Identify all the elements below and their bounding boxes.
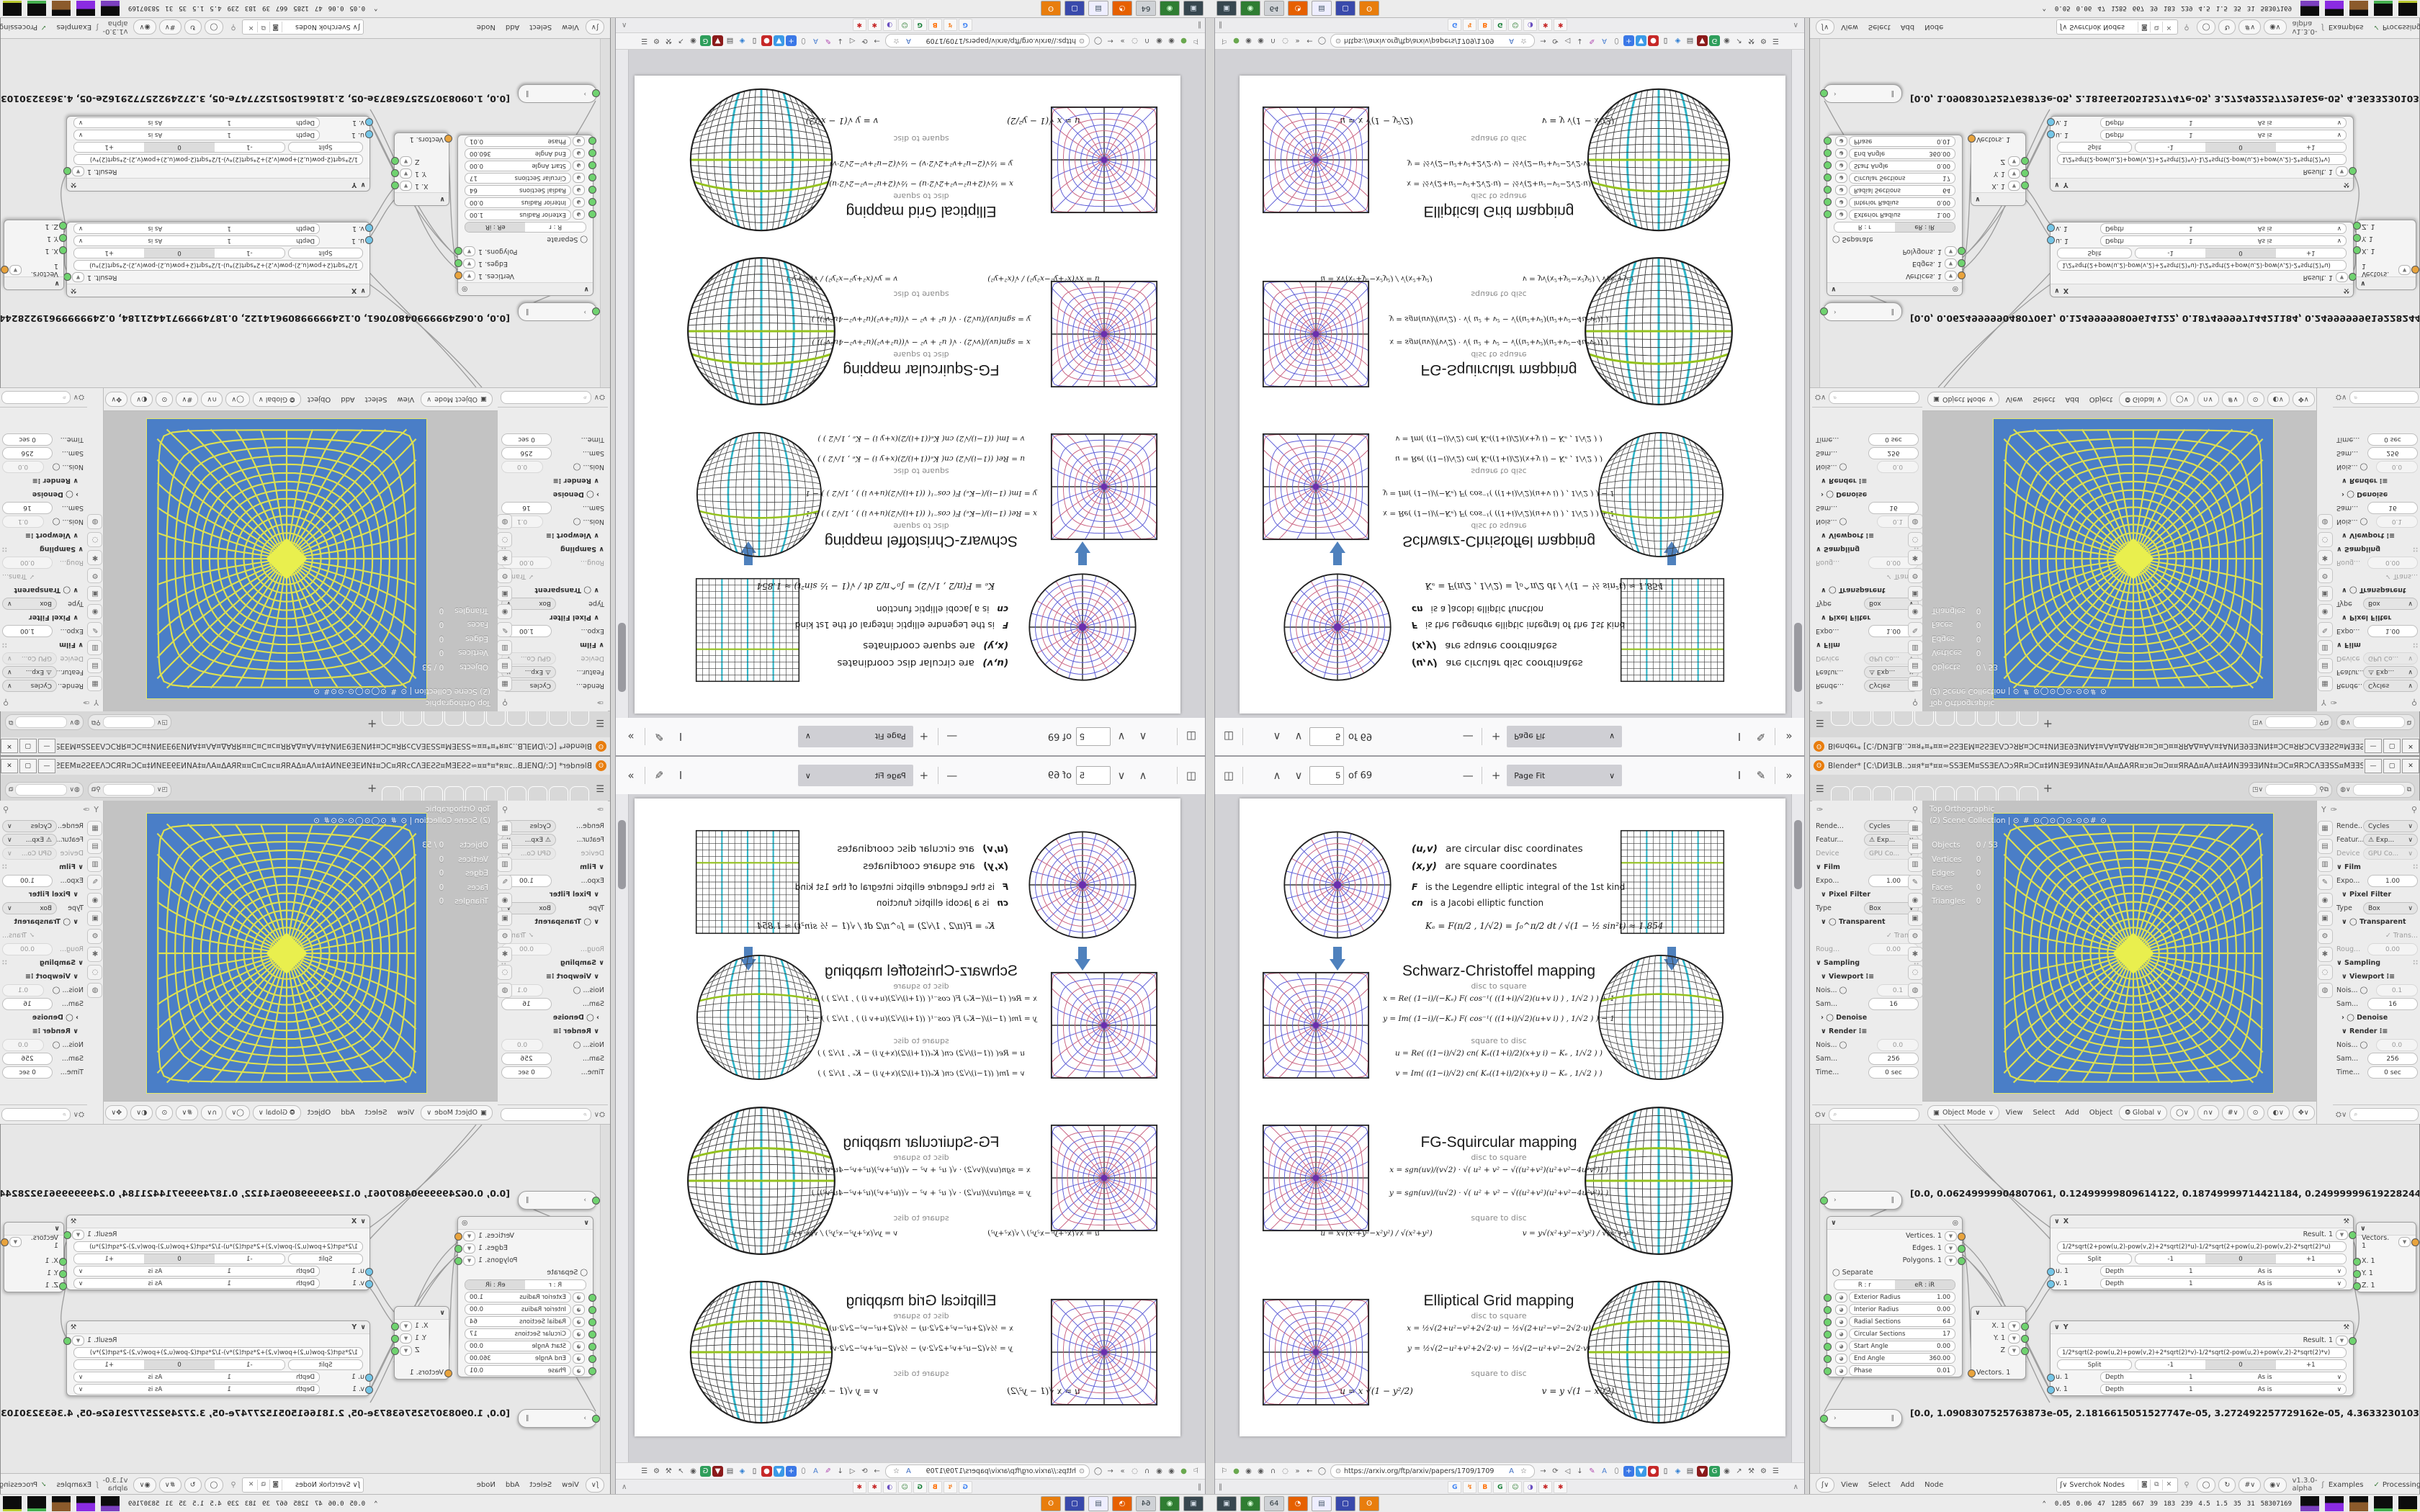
- google-ext-icon[interactable]: G: [1709, 35, 1720, 46]
- pencil-ext-icon[interactable]: ✎: [823, 35, 833, 46]
- sidebar-toggle-icon[interactable]: ◫: [1219, 727, 1238, 746]
- pin-icon[interactable]: ⚲: [2319, 786, 2324, 793]
- pin-icon[interactable]: ⚲: [502, 805, 508, 814]
- draw-tool[interactable]: ✎: [650, 766, 668, 785]
- slider-circular-sections[interactable]: Circular Sections17: [1849, 173, 1955, 184]
- slider-end-angle[interactable]: End Angle360.00: [465, 148, 571, 159]
- socket-vertices-out[interactable]: [1958, 1233, 1966, 1241]
- tab-output[interactable]: ▤: [2318, 658, 2333, 673]
- pinned-tab-gear2[interactable]: ✱: [853, 1481, 866, 1493]
- tab-physics[interactable]: ◌: [2318, 532, 2333, 547]
- sampling-panel-header[interactable]: ∨ Sampling: [1816, 545, 1914, 553]
- bookmark-star-icon[interactable]: ☆: [891, 1466, 902, 1477]
- menu-object[interactable]: Object: [308, 395, 331, 403]
- menu-node[interactable]: Node: [1924, 1481, 1943, 1489]
- render-engine-select[interactable]: Cycles∨: [2, 820, 57, 832]
- workspace-tab[interactable]: [1894, 786, 1913, 801]
- viewport-3d[interactable]: Top Orthographic (2) Scene Collection | …: [1922, 388, 2316, 711]
- viewport-sampling-header[interactable]: ∨ Viewport ⁝≡: [501, 531, 599, 539]
- pdf-scroll-thumb[interactable]: [1794, 820, 1802, 889]
- sidebar-toggle-icon[interactable]: ◫: [1182, 766, 1201, 785]
- app-menu-icon[interactable]: ☰: [596, 784, 604, 795]
- globe-icon[interactable]: ◉: [1154, 1466, 1165, 1477]
- plus-ext-icon[interactable]: +: [786, 1466, 797, 1477]
- menu-add[interactable]: Add: [1901, 24, 1914, 32]
- slider-phase[interactable]: Phase0.01: [1849, 136, 1955, 147]
- viewlayer-selector[interactable]: ◍∨ ⧉: [5, 714, 84, 730]
- filter-type-select[interactable]: Box∨: [2, 902, 57, 914]
- denoise-header[interactable]: › ◯ Denoise: [501, 1014, 599, 1022]
- feature-set-select[interactable]: ⚠ Exp...∨: [2363, 666, 2418, 678]
- scene-name-field[interactable]: [2265, 716, 2317, 728]
- reader-icon[interactable]: ◯: [1093, 35, 1103, 46]
- gear-icon[interactable]: ⚙: [1758, 1466, 1769, 1477]
- zoom-select[interactable]: Page Fit ∨: [798, 765, 913, 786]
- feature-set-select[interactable]: ⚠ Exp...∨: [2, 834, 57, 846]
- zoom-in-button[interactable]: +: [915, 766, 933, 785]
- tab-physics[interactable]: ◌: [1908, 965, 1923, 980]
- pinned-tab-stackoverflow[interactable]: ↯: [944, 1481, 957, 1493]
- socket-z-out[interactable]: [391, 157, 399, 165]
- tab-scene[interactable]: ✎: [1908, 875, 1923, 890]
- zoom-in-button[interactable]: +: [1487, 766, 1505, 785]
- viewlayer-name-field[interactable]: [2353, 784, 2405, 796]
- slider-interior-radius[interactable]: Interior Radius0.00: [1849, 1304, 1955, 1315]
- render-noise-threshold-field[interactable]: 0.0: [2, 1039, 44, 1051]
- tab-world[interactable]: ◉: [1908, 893, 1923, 908]
- share-icon[interactable]: ↗: [1734, 35, 1744, 46]
- shield-ext-icon[interactable]: ▼: [774, 35, 784, 46]
- proportional-edit-icon[interactable]: ⊙: [156, 392, 173, 407]
- copy-icon[interactable]: ⧉: [91, 786, 96, 793]
- back-icon[interactable]: ←: [1304, 35, 1315, 46]
- pinned-tab-chat[interactable]: ◑: [883, 19, 897, 31]
- globe-icon[interactable]: ◉: [1243, 1466, 1254, 1477]
- mask-ext-icon[interactable]: ⬯: [1611, 1466, 1622, 1477]
- ublock-icon[interactable]: ▼: [1697, 35, 1708, 46]
- sverchok-node-editor[interactable]: [0.0, 0.06249999904807061, 0.12499999809…: [1810, 38, 2419, 388]
- vector-out-node[interactable]: ∨ X. 1▼ Y. 1▼ Z▼ Vectors. 1: [1971, 1306, 2026, 1380]
- socket-vectors-in[interactable]: [444, 1369, 452, 1377]
- socket-x-in[interactable]: [2353, 246, 2361, 254]
- slider-circular-sections[interactable]: Circular Sections17: [465, 173, 571, 184]
- slider-phase[interactable]: Phase0.01: [1849, 1365, 1955, 1376]
- reload-icon[interactable]: ⟳: [859, 1466, 870, 1477]
- formula-node-x[interactable]: ∨X⚒ Result. 1▼ 1/2*sqrt(2+pow(u,2)-pow(v…: [2050, 1215, 2354, 1290]
- socket-y-out[interactable]: [2021, 169, 2029, 177]
- workspace-tab[interactable]: [423, 711, 443, 726]
- socket-z-in[interactable]: [2353, 1282, 2361, 1290]
- formula-node-x[interactable]: ∨X⚒ Result. 1▼ 1/2*sqrt(2+pow(u,2)-pow(v…: [2050, 222, 2354, 297]
- scene-selector[interactable]: ◳∨ ⚲ ⧉: [2249, 782, 2332, 798]
- reader-icon[interactable]: ◯: [1317, 1466, 1327, 1477]
- trash-ext-icon[interactable]: ▯: [1660, 35, 1671, 46]
- pinned-tab-smiley[interactable]: ☺: [898, 19, 912, 31]
- render-samples-field[interactable]: 256: [1868, 1053, 1919, 1065]
- split-button[interactable]: Split: [2057, 248, 2132, 258]
- tab-particles[interactable]: ✱: [1908, 550, 1923, 565]
- slider-phase[interactable]: Phase0.01: [465, 136, 571, 147]
- film-panel-header[interactable]: ∨ Film: [7, 863, 84, 871]
- tab-render[interactable]: ▦: [2318, 676, 2333, 691]
- adblock-icon[interactable]: ●: [1231, 1466, 1242, 1477]
- google-ext-icon[interactable]: G: [700, 35, 711, 46]
- socket-vectors-out[interactable]: [1, 1238, 9, 1246]
- pixel-filter-header[interactable]: ∨ Pixel Filter: [1821, 891, 1919, 899]
- unlink-button[interactable]: ✕: [2162, 22, 2174, 33]
- depth-row[interactable]: Depth1As is∨: [2100, 223, 2347, 234]
- workspace-tab[interactable]: [403, 786, 422, 801]
- socket-polygons-out[interactable]: [454, 1257, 462, 1265]
- tab-physics[interactable]: ◌: [88, 965, 103, 980]
- tab-physics[interactable]: ◌: [498, 965, 513, 980]
- socket-in[interactable]: [588, 1355, 596, 1363]
- socket-polygons-out[interactable]: [1958, 247, 1966, 255]
- socket-in[interactable]: [588, 1294, 596, 1302]
- socket-vertices-out[interactable]: [454, 1233, 462, 1241]
- reader-icon[interactable]: ◯: [1317, 35, 1327, 46]
- app-blender[interactable]: ʘ: [1041, 1496, 1061, 1511]
- tab-overflow-icon[interactable]: ∧: [1793, 1483, 1798, 1491]
- props-filter-dropdown[interactable]: ⛭∨: [594, 394, 605, 402]
- socket-result-out[interactable]: [2349, 167, 2357, 175]
- app-screenshot[interactable]: ▣: [1183, 1, 1204, 16]
- reload-icon[interactable]: ⟳: [1550, 35, 1561, 46]
- proportional-edit-icon[interactable]: ⊙: [156, 1105, 173, 1120]
- pinned-tab-gear1[interactable]: ✱: [868, 1481, 882, 1493]
- transparent-header[interactable]: ∨ ◯ Transparent: [2341, 586, 2418, 594]
- pin-icon[interactable]: ⚲: [3, 805, 9, 814]
- viewport-sampling-header[interactable]: ∨ Viewport ⁝≡: [2, 531, 79, 539]
- formula-node-y[interactable]: ∨Y⚒ Result. 1▼ 1/2*sqrt(2-pow(u,2)+pow(v…: [2050, 116, 2354, 192]
- film-panel-header[interactable]: ∨ Film: [506, 863, 604, 871]
- headphones-icon[interactable]: ∩: [1142, 35, 1152, 46]
- page-number-input[interactable]: [1076, 727, 1111, 746]
- render-engine-select[interactable]: Cycles∨: [2363, 680, 2418, 692]
- toolbar-more-icon[interactable]: »: [1780, 727, 1798, 746]
- mode-selector[interactable]: ▣ Object Mode ∨: [1927, 1105, 1999, 1120]
- palette-ext-icon[interactable]: ◈: [737, 35, 748, 46]
- tab-scroll-left-icon[interactable]: ‖: [1219, 21, 1222, 29]
- tab-output[interactable]: ▤: [88, 839, 103, 854]
- slider-interior-radius[interactable]: Interior Radius0.00: [1849, 197, 1955, 208]
- palette-ext-icon[interactable]: ◈: [1672, 1466, 1683, 1477]
- menu-icon[interactable]: ☰: [1770, 35, 1781, 46]
- separate-checkbox[interactable]: ◯ Separate: [547, 235, 588, 243]
- viewport-3d[interactable]: Top Orthographic (2) Scene Collection | …: [1922, 801, 2316, 1124]
- tab-render[interactable]: ▦: [1908, 676, 1923, 691]
- snap-target-dropdown[interactable]: #∨: [2222, 392, 2244, 407]
- share-icon[interactable]: ↗: [676, 35, 686, 46]
- draw-tool[interactable]: ✎: [650, 727, 668, 746]
- tab-physics[interactable]: ◌: [2318, 965, 2333, 980]
- app-camera[interactable]: ◉: [1160, 1496, 1180, 1511]
- app-camera[interactable]: ◉: [1240, 1496, 1260, 1511]
- socket-in[interactable]: [1820, 89, 1828, 97]
- slider-radial-sections[interactable]: Radial Sections64: [1849, 185, 1955, 196]
- pinned-tab-blogger[interactable]: B: [928, 19, 942, 31]
- snap-magnet-dropdown[interactable]: ∩∨: [201, 1105, 223, 1120]
- viewport-3d[interactable]: Top Orthographic (2) Scene Collection | …: [104, 388, 498, 711]
- workspace-tab[interactable]: [1894, 711, 1913, 726]
- ring-node[interactable]: ∨◎ Vertices. 1▼ Edges. 1▼ Polygons. 1▼ ◯…: [1827, 135, 1963, 296]
- pin-icon[interactable]: ⚐: [1191, 1466, 1201, 1477]
- copy-button[interactable]: ⧉: [2150, 22, 2162, 33]
- snap-magnet-dropdown[interactable]: ∩∨: [2197, 1105, 2219, 1120]
- globe-icon[interactable]: ◉: [1166, 1466, 1177, 1477]
- slider-interior-radius[interactable]: Interior Radius0.00: [465, 1304, 571, 1315]
- bookmark-star-icon[interactable]: ☆: [1518, 1466, 1529, 1477]
- socket-in[interactable]: [1824, 149, 1832, 157]
- notes-ext-icon[interactable]: ▤: [1685, 1466, 1695, 1477]
- pencil-ext-icon[interactable]: ✎: [1587, 1466, 1597, 1477]
- app-notes[interactable]: ▤: [1088, 1, 1108, 16]
- socket-edges-out[interactable]: [1958, 259, 1966, 267]
- roughness-field[interactable]: 0.00: [2367, 943, 2418, 955]
- pin-icon[interactable]: ⚐: [1191, 35, 1201, 46]
- socket-y-out[interactable]: [391, 169, 399, 177]
- socket-vectors-out[interactable]: [2411, 266, 2419, 274]
- render-sampling-header[interactable]: ∨ Render ⁝≡: [1821, 477, 1919, 485]
- translate-ext-icon[interactable]: A: [810, 35, 821, 46]
- toolbar-more-icon[interactable]: »: [622, 766, 640, 785]
- scene-selector[interactable]: ◳∨ ⚲ ⧉: [88, 782, 171, 798]
- collapsed-node-b[interactable]: › ‖: [518, 84, 597, 103]
- workspace-tab[interactable]: [1956, 786, 1976, 801]
- socket-v-in[interactable]: [365, 118, 373, 126]
- workspace-tab[interactable]: [1935, 711, 1955, 726]
- adblock-icon[interactable]: ●: [1231, 35, 1242, 46]
- wrench-icon[interactable]: ⚒: [663, 1466, 674, 1477]
- editor-type-dropdown[interactable]: ʃ∨: [586, 1477, 604, 1493]
- pin-icon[interactable]: ⚲: [96, 719, 101, 726]
- toolbar-more-icon[interactable]: »: [1780, 766, 1798, 785]
- forward-icon[interactable]: →: [1538, 1466, 1549, 1477]
- tab-data[interactable]: ◍: [2318, 983, 2333, 998]
- ring-node[interactable]: ∨◎ Vertices. 1▼ Edges. 1▼ Polygons. 1▼ ◯…: [457, 1216, 593, 1377]
- reader-icon[interactable]: ◯: [1093, 1466, 1103, 1477]
- pixel-filter-header[interactable]: ∨ Pixel Filter: [2341, 891, 2418, 899]
- copy-icon[interactable]: ⧉: [9, 719, 13, 726]
- socket-x-out[interactable]: [391, 1323, 399, 1331]
- globe-icon[interactable]: ◉: [1166, 35, 1177, 46]
- props-search-input[interactable]: ⌕: [1, 391, 71, 404]
- viewport-sampling-header[interactable]: ∨ Viewport ⁝≡: [501, 973, 599, 981]
- formula-input-x[interactable]: 1/2*sqrt(2+pow(u,2)-pow(v,2)+2*sqrt(2)*u…: [73, 1241, 363, 1252]
- pdf-scrollbar[interactable]: [616, 50, 629, 718]
- sampling-panel-header[interactable]: ∨ Sampling: [2336, 959, 2413, 967]
- translate-icon[interactable]: A: [1506, 35, 1517, 46]
- socket-x-in[interactable]: [59, 1258, 67, 1266]
- pinned-tab-chat[interactable]: ◑: [1523, 19, 1537, 31]
- device-select[interactable]: GPU Co...∨: [2, 652, 57, 665]
- render-samples-field[interactable]: 256: [2, 1053, 53, 1065]
- pin-icon[interactable]: ⚲: [3, 698, 9, 708]
- film-panel-header[interactable]: ∨ Film: [1816, 641, 1914, 649]
- socket-in[interactable]: [1820, 1197, 1828, 1205]
- app-window[interactable]: ▢: [1065, 1, 1085, 16]
- dimension-switch[interactable]: -10+1: [2135, 1254, 2347, 1264]
- tab-object[interactable]: ▣: [1908, 586, 1923, 601]
- close-button[interactable]: ✕: [2402, 759, 2419, 773]
- denoise-header[interactable]: › ◯ Denoise: [2, 490, 79, 498]
- workspace-tab[interactable]: [444, 786, 464, 801]
- pixel-filter-header[interactable]: ∨ Pixel Filter: [2341, 613, 2418, 621]
- socket-polygons-out[interactable]: [1958, 1257, 1966, 1265]
- copy-button[interactable]: ⧉: [258, 22, 270, 33]
- slider-end-angle[interactable]: End Angle360.00: [1849, 148, 1955, 159]
- fake-user-button[interactable]: ◙: [270, 1480, 282, 1490]
- slider-start-angle[interactable]: Start Angle0.00: [1849, 161, 1955, 171]
- blender-titlebar[interactable]: ʘ Blender* [C:\DИƎLB..ɔ¤я*¤*¤¤≈SSƎEM¤SSƎ…: [1, 757, 610, 775]
- pixel-filter-header[interactable]: ∨ Pixel Filter: [1821, 613, 1919, 621]
- ublock-icon[interactable]: ▼: [712, 1466, 723, 1477]
- socket-vectors-in[interactable]: [444, 135, 452, 143]
- socket-in[interactable]: [588, 1318, 596, 1326]
- pinned-tab-chat[interactable]: ◑: [1523, 1481, 1537, 1493]
- socket-in[interactable]: [588, 149, 596, 157]
- viewport-samples-field[interactable]: 16: [1868, 998, 1919, 1010]
- workspace-tab[interactable]: [507, 786, 526, 801]
- workspace-tab[interactable]: [1956, 711, 1976, 726]
- snap-magnet-dropdown[interactable]: ∩∨: [2197, 392, 2219, 407]
- pencil-ext-icon[interactable]: ✎: [1587, 35, 1597, 46]
- menu-select[interactable]: Select: [2033, 395, 2056, 403]
- vector-in-node[interactable]: ∨ Vectors. 1▼ X. 1 Y. 1 Z. 1: [4, 1222, 64, 1292]
- socket-in[interactable]: [1824, 174, 1832, 181]
- app-window[interactable]: ▢: [1065, 1496, 1085, 1511]
- node-tree-selector[interactable]: ʃ∨ Sverchok Nodes ◙ ⧉ ✕: [242, 20, 364, 35]
- pin-icon[interactable]: ⚲: [1912, 698, 1918, 708]
- app-camera[interactable]: ◉: [1240, 1, 1260, 16]
- menu-select[interactable]: Select: [1868, 24, 1891, 32]
- socket-in[interactable]: [588, 1306, 596, 1314]
- pin-icon[interactable]: ⚲: [2184, 24, 2189, 32]
- sampling-panel-header[interactable]: ∨ Sampling: [2336, 545, 2413, 553]
- socket-v-in[interactable]: [2047, 1386, 2055, 1394]
- back-icon[interactable]: ←: [1304, 1466, 1315, 1477]
- separate-checkbox[interactable]: ◯ Separate: [547, 1269, 588, 1277]
- socket-polygons-out[interactable]: [454, 247, 462, 255]
- menu-icon[interactable]: ☰: [639, 35, 650, 46]
- tab-overflow-icon[interactable]: ∧: [1793, 21, 1798, 29]
- shading-dropdown[interactable]: ◐∨: [2267, 392, 2290, 407]
- props-filter-dropdown[interactable]: ⛭∨: [1815, 394, 1826, 402]
- filter-type-select[interactable]: Box∨: [2, 598, 57, 610]
- pinned-tab-chat[interactable]: ◑: [883, 1481, 897, 1493]
- depth-row[interactable]: Depth1As is∨: [73, 117, 320, 128]
- tab-scene[interactable]: ✎: [498, 622, 513, 637]
- tab-object[interactable]: ▣: [498, 911, 513, 926]
- tab-physics[interactable]: ◌: [1908, 532, 1923, 547]
- node-tree-selector[interactable]: ʃ∨ Sverchok Nodes ◙ ⧉ ✕: [2056, 1477, 2178, 1493]
- props-search-input[interactable]: ⌕: [1829, 391, 1919, 404]
- socket-in[interactable]: [1824, 1306, 1832, 1314]
- page-down-button[interactable]: ∨: [1289, 727, 1308, 746]
- render-noise-threshold-field[interactable]: 0.0: [2, 461, 44, 473]
- app-blender[interactable]: ʘ: [1041, 1, 1061, 16]
- socket-u-in[interactable]: [2047, 1374, 2055, 1382]
- zoom-in-button[interactable]: +: [1487, 727, 1505, 746]
- slider-circular-sections[interactable]: Circular Sections17: [1849, 1328, 1955, 1339]
- gear-icon[interactable]: ◎: [462, 285, 467, 293]
- film-panel-header[interactable]: ∨ Film: [1816, 863, 1914, 871]
- socket-u-in[interactable]: [2047, 1268, 2055, 1276]
- viewport-sampling-header[interactable]: ∨ Viewport ⁝≡: [2341, 531, 2418, 539]
- node-tree-selector[interactable]: ʃ∨ Sverchok Nodes ◙ ⧉ ✕: [2056, 20, 2178, 35]
- render-sampling-header[interactable]: ∨ Render ⁝≡: [501, 1027, 599, 1035]
- page-down-button[interactable]: ∨: [1112, 766, 1131, 785]
- app-menu-icon[interactable]: ☰: [596, 717, 604, 728]
- props-search-input[interactable]: ⌕: [501, 391, 591, 404]
- mode-selector[interactable]: ▣ Object Mode ∨: [421, 1105, 493, 1120]
- trash-ext-icon[interactable]: ▯: [1660, 1466, 1671, 1477]
- shading-dropdown[interactable]: ◐∨: [130, 392, 153, 407]
- tab-scene[interactable]: ✎: [88, 622, 103, 637]
- reload-icon[interactable]: ⟳: [1550, 1466, 1561, 1477]
- palette-ext-icon[interactable]: ◈: [1672, 35, 1683, 46]
- socket-v-in[interactable]: [2047, 118, 2055, 126]
- viewport-samples-field[interactable]: 16: [2367, 998, 2418, 1010]
- page-number-input[interactable]: [1309, 766, 1344, 785]
- menu-icon[interactable]: ☰: [639, 1466, 650, 1477]
- pinned-tab-stackoverflow[interactable]: ↯: [944, 19, 957, 31]
- socket-z-out[interactable]: [2021, 157, 2029, 165]
- collapsed-node-b[interactable]: › ‖: [1823, 1409, 1902, 1428]
- socket-z-out[interactable]: [2021, 1347, 2029, 1355]
- add-workspace-button[interactable]: +: [2043, 717, 2053, 731]
- vector-out-node[interactable]: ∨ X. 1▼ Y. 1▼ Z▼ Vectors. 1: [394, 1306, 449, 1380]
- menu-select[interactable]: Select: [529, 1481, 552, 1489]
- tab-particles[interactable]: ✱: [498, 947, 513, 962]
- plus-ext-icon[interactable]: +: [1623, 1466, 1634, 1477]
- ring-node[interactable]: ∨◎ Vertices. 1▼ Edges. 1▼ Polygons. 1▼ ◯…: [457, 135, 593, 296]
- render-noise-threshold-field[interactable]: 0.0: [2376, 1039, 2418, 1051]
- tab-scene[interactable]: ✎: [498, 875, 513, 890]
- menu-node[interactable]: Node: [477, 24, 496, 32]
- gear-icon[interactable]: ◎: [462, 1219, 467, 1227]
- socket-result-out[interactable]: [63, 1337, 71, 1345]
- app-save64[interactable]: 64: [1136, 1, 1156, 16]
- fake-user-button[interactable]: ◙: [270, 22, 282, 33]
- socket-vectors-out[interactable]: [1, 266, 9, 274]
- socket-z-out[interactable]: [391, 1347, 399, 1355]
- plus-ext-icon[interactable]: +: [1623, 35, 1634, 46]
- roughness-field[interactable]: 0.00: [2367, 557, 2418, 569]
- sampling-panel-header[interactable]: ∨ Sampling: [7, 545, 84, 553]
- page-up-button[interactable]: ∧: [1134, 766, 1152, 785]
- sidebar-toggle-icon[interactable]: ◫: [1219, 766, 1238, 785]
- notes-ext-icon[interactable]: ▤: [1685, 35, 1695, 46]
- pinned-tab-stackoverflow[interactable]: ↯: [1463, 1481, 1476, 1493]
- pdf-scroll-thumb[interactable]: [618, 820, 626, 889]
- app-notes[interactable]: ▤: [1088, 1496, 1108, 1511]
- props-search-input[interactable]: ⌕: [1829, 1108, 1919, 1121]
- speaker-icon[interactable]: ◁: [1562, 1466, 1573, 1477]
- time-limit-field[interactable]: 0 sec: [2, 433, 53, 446]
- overflow-chevron-icon[interactable]: »: [1292, 35, 1303, 46]
- depth-row[interactable]: Depth1As is∨: [73, 1278, 320, 1289]
- menu-node[interactable]: Node: [477, 1481, 496, 1489]
- collapsed-node-b[interactable]: › ‖: [1823, 84, 1902, 103]
- transparent-glass-check[interactable]: ✓ Trans...: [2, 932, 35, 940]
- pinned-tab-gear1[interactable]: ✱: [1538, 1481, 1552, 1493]
- socket-y-in[interactable]: [2353, 1270, 2361, 1278]
- socket-in[interactable]: [1824, 137, 1832, 145]
- workspace-tab[interactable]: [1935, 786, 1955, 801]
- scene-selector[interactable]: ◳∨ ⚲ ⧉: [88, 714, 171, 730]
- transparent-glass-check[interactable]: ✓ Trans...: [2, 572, 35, 580]
